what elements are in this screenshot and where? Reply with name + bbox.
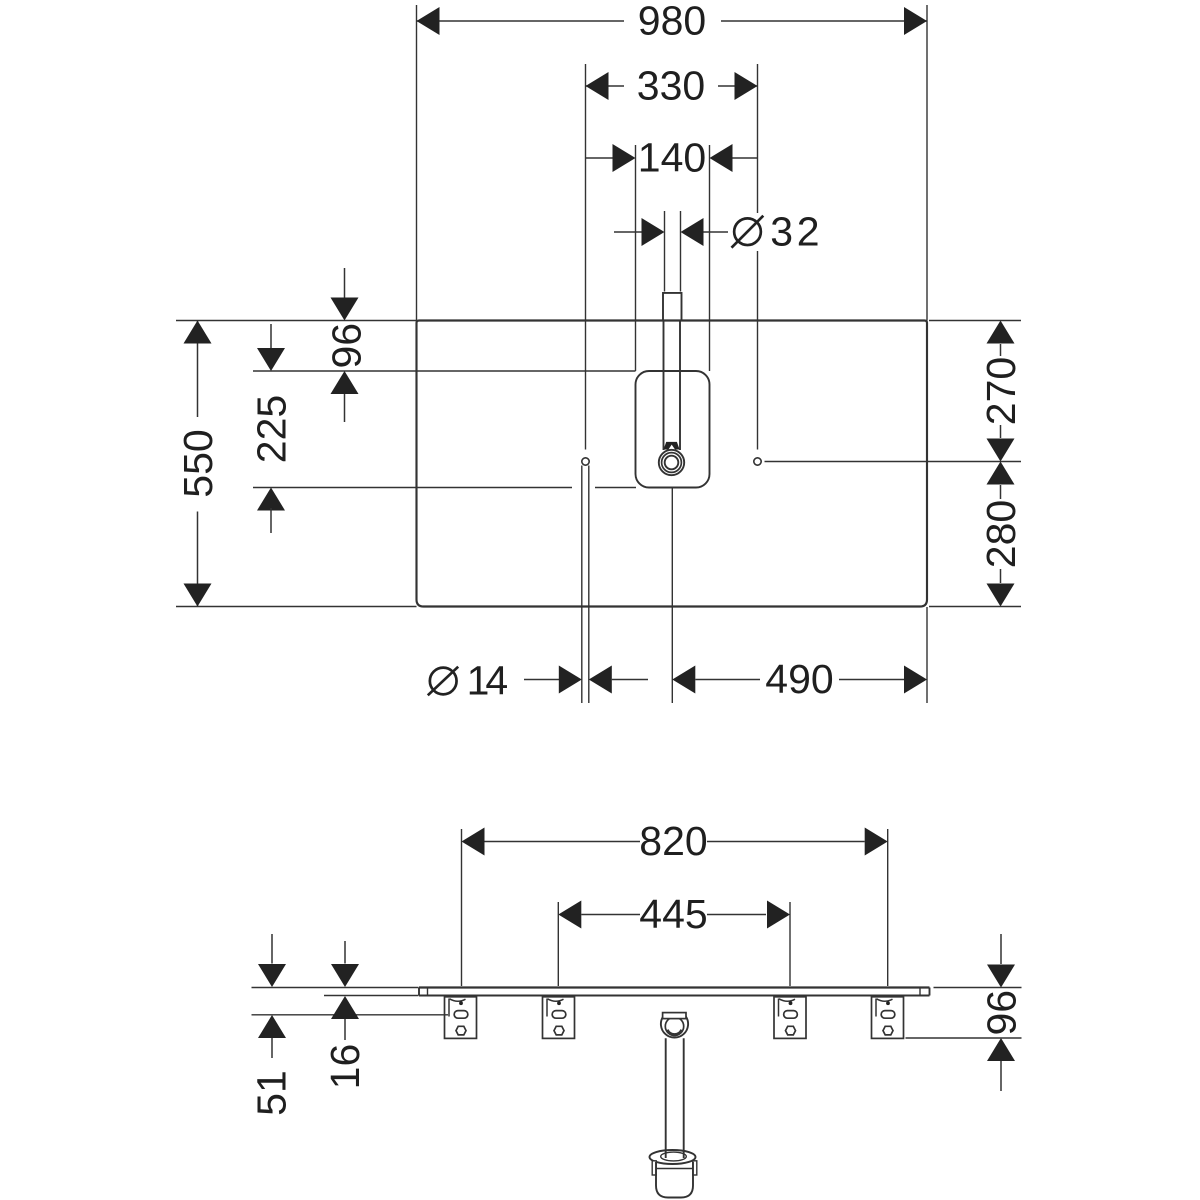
svg-text:980: 980 — [638, 0, 706, 44]
svg-text:16: 16 — [322, 1044, 368, 1090]
svg-text:51: 51 — [249, 1070, 295, 1116]
svg-text:96: 96 — [979, 990, 1025, 1036]
svg-text:4: 4 — [485, 658, 508, 704]
svg-text:490: 490 — [765, 656, 833, 702]
svg-text:820: 820 — [639, 818, 707, 864]
svg-text:3: 3 — [770, 208, 793, 254]
svg-text:270: 270 — [978, 357, 1024, 425]
svg-text:140: 140 — [638, 135, 706, 181]
svg-text:225: 225 — [249, 395, 295, 463]
svg-text:96: 96 — [324, 323, 370, 369]
svg-text:280: 280 — [978, 500, 1024, 568]
svg-text:550: 550 — [175, 429, 221, 497]
svg-text:330: 330 — [637, 63, 705, 109]
svg-text:445: 445 — [639, 891, 707, 937]
svg-text:2: 2 — [797, 208, 820, 254]
